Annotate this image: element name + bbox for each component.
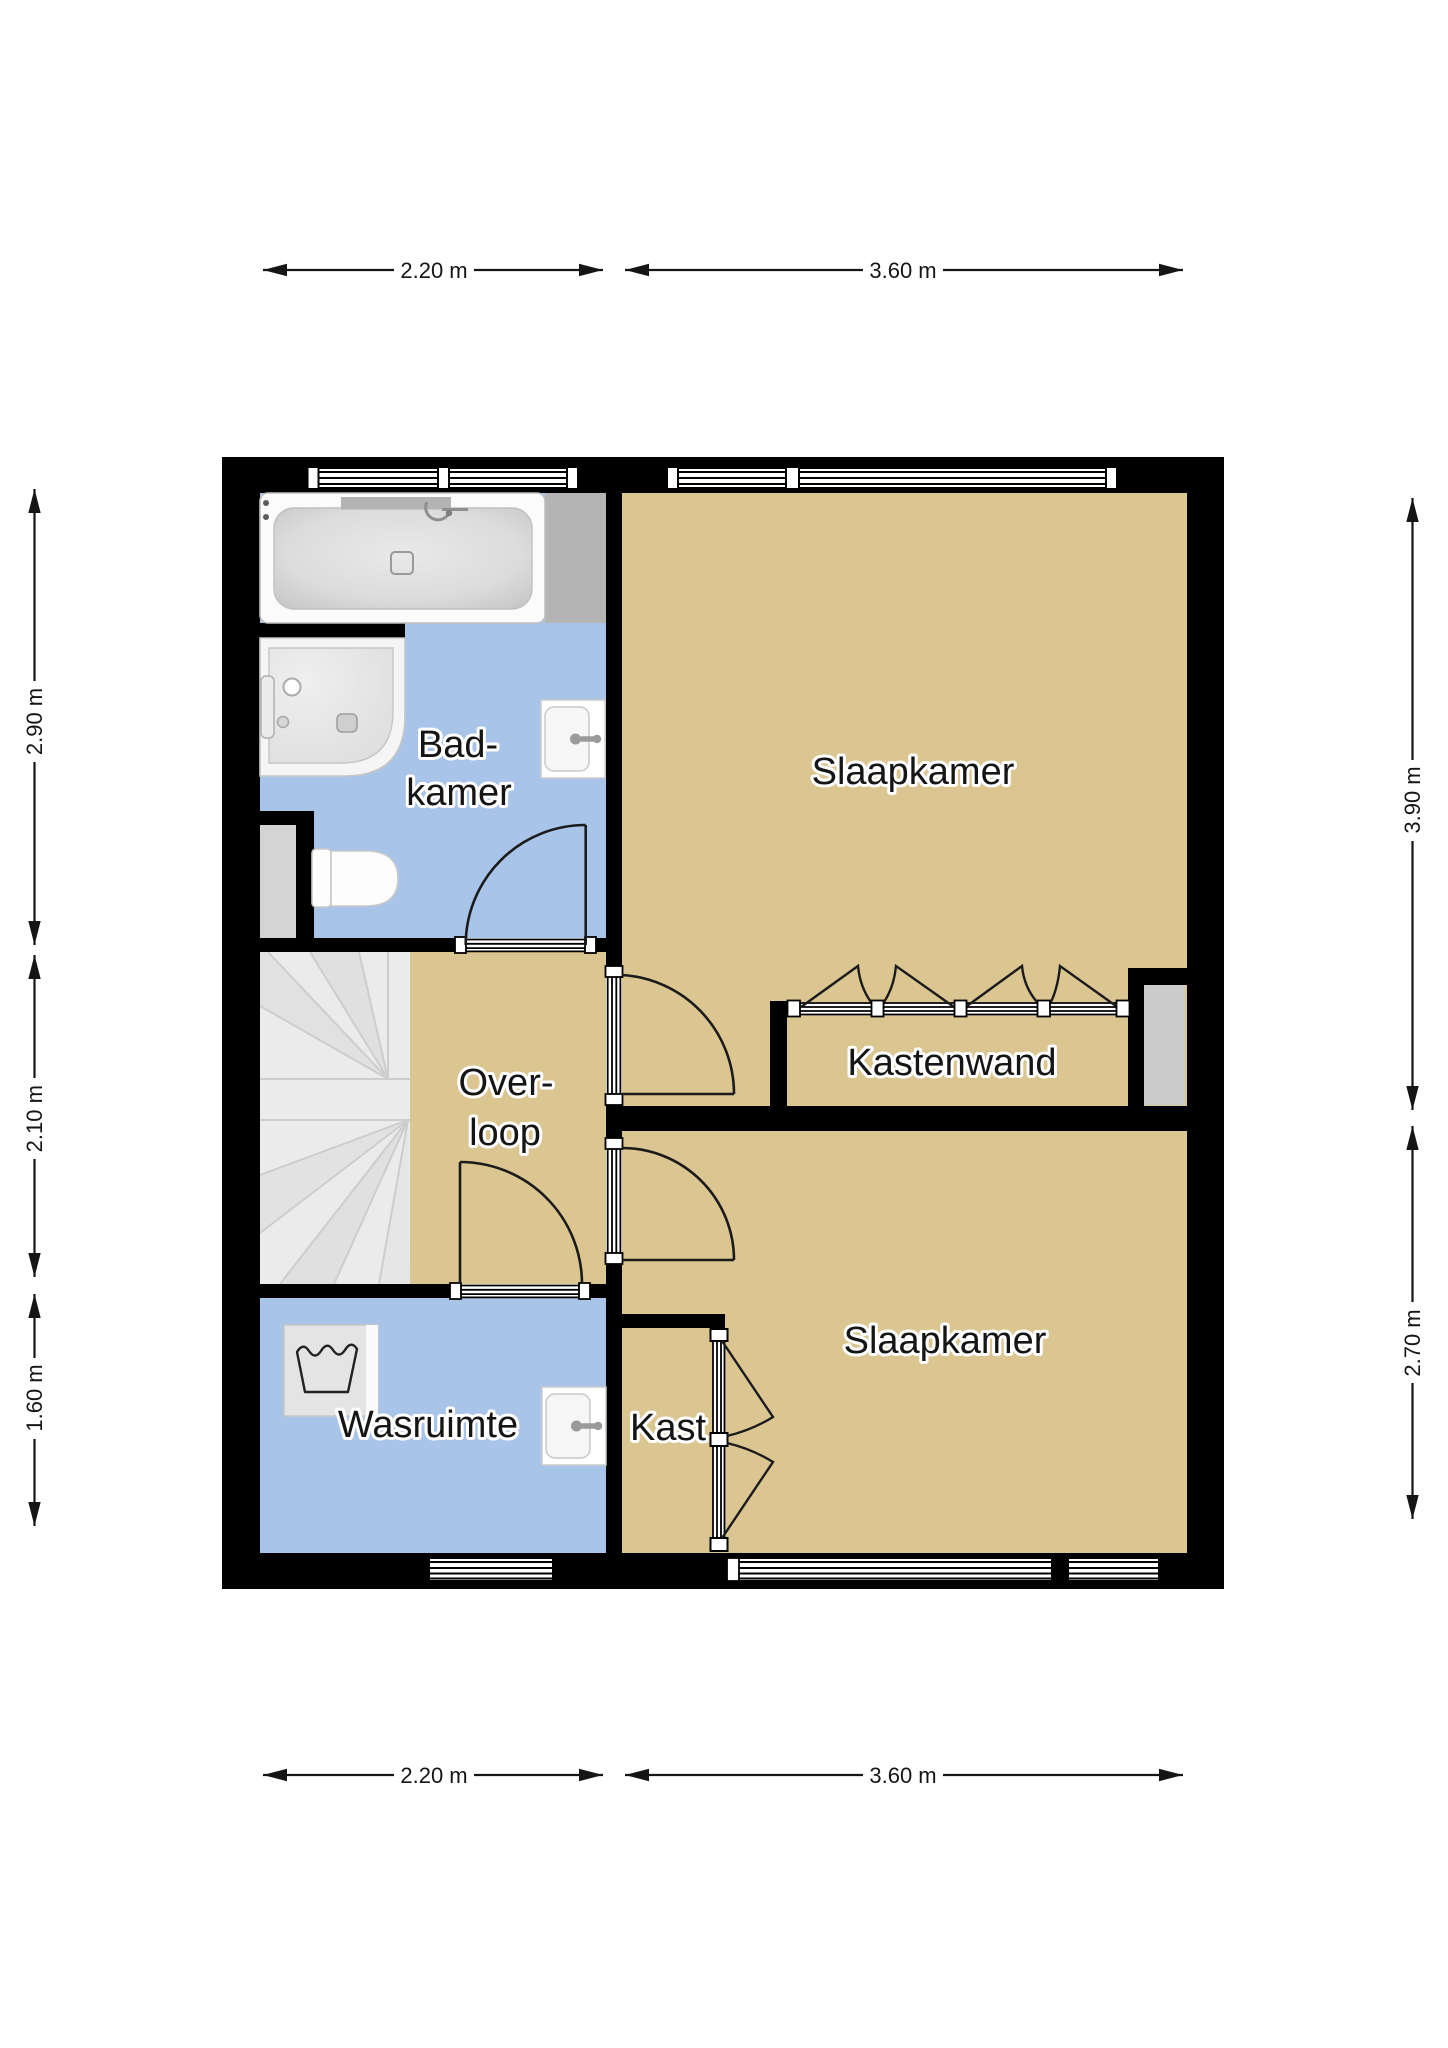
svg-text:2.90 m: 2.90 m	[22, 688, 47, 755]
svg-text:3.90 m: 3.90 m	[1400, 766, 1425, 833]
svg-text:2.10 m: 2.10 m	[22, 1085, 47, 1152]
svg-text:1.60 m: 1.60 m	[22, 1364, 47, 1431]
svg-text:Over-: Over-	[459, 1062, 554, 1104]
svg-text:Slaapkamer: Slaapkamer	[844, 1320, 1047, 1362]
svg-text:Wasruimte: Wasruimte	[338, 1404, 518, 1446]
svg-text:2.70 m: 2.70 m	[1400, 1309, 1425, 1376]
svg-text:Kastenwand: Kastenwand	[847, 1042, 1056, 1084]
svg-text:loop: loop	[469, 1112, 541, 1154]
svg-text:3.60 m: 3.60 m	[869, 258, 936, 283]
svg-text:Slaapkamer: Slaapkamer	[812, 751, 1015, 793]
svg-text:kamer: kamer	[406, 772, 512, 814]
svg-text:Kast: Kast	[630, 1407, 706, 1449]
svg-text:Bad-: Bad-	[418, 724, 498, 766]
svg-text:3.60 m: 3.60 m	[869, 1763, 936, 1788]
svg-text:2.20 m: 2.20 m	[400, 258, 467, 283]
svg-text:2.20 m: 2.20 m	[400, 1763, 467, 1788]
